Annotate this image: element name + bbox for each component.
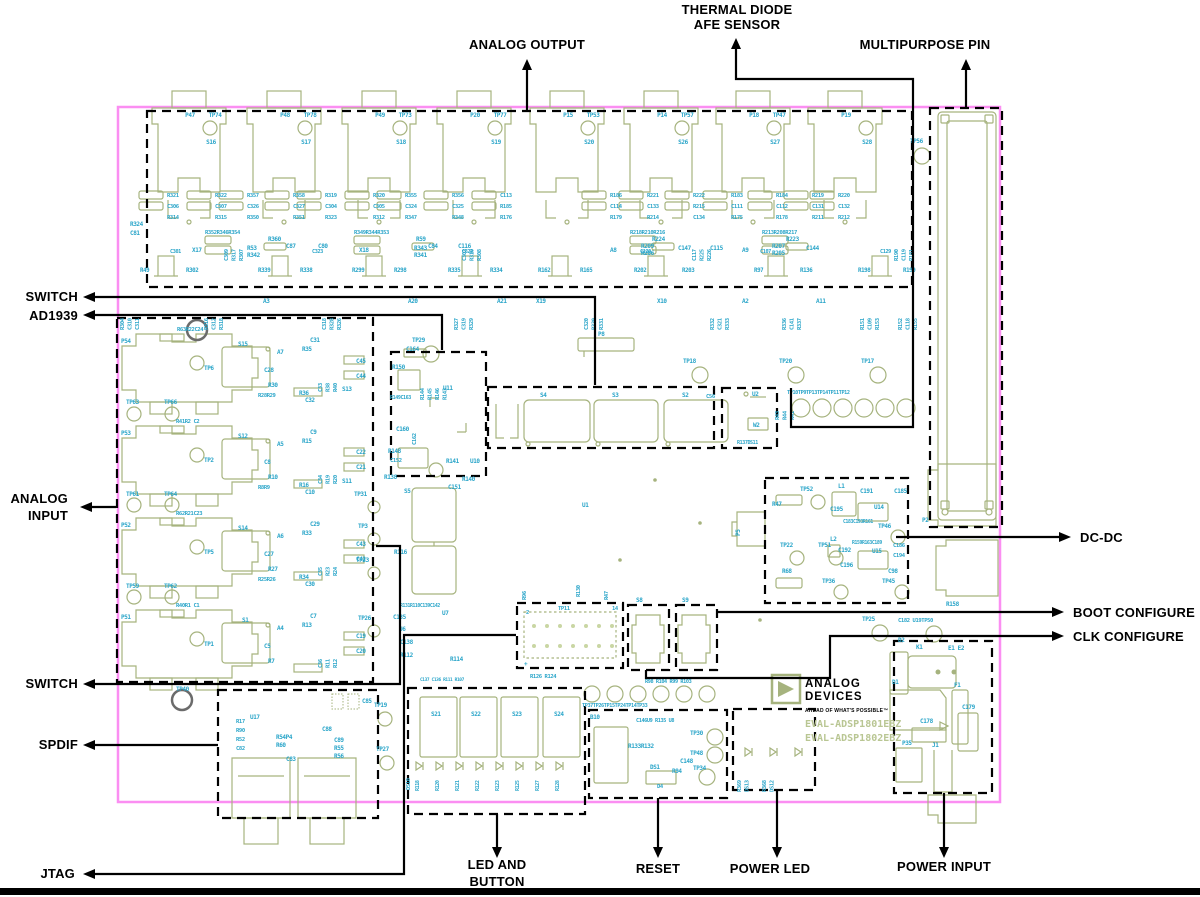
j1-barrel-below-board (928, 795, 976, 823)
silk-label: R315 (215, 215, 227, 221)
silk-label: C147 (678, 245, 692, 252)
silk-label: S26 (678, 139, 688, 146)
silk-label-vertical: R318 (219, 318, 225, 330)
led-label: R125 (515, 780, 521, 791)
silk-label: C133 (647, 204, 659, 210)
jack-tab (362, 91, 396, 108)
testpoint-pad (190, 356, 204, 370)
silk-label: R214 (647, 215, 660, 221)
silk-label: TP36 (822, 578, 836, 585)
silk-label: S4 (540, 392, 547, 399)
silk-label: 14 (612, 606, 619, 612)
silk-label-vertical: C35 (318, 567, 324, 576)
silk-label: S1 (242, 617, 249, 624)
jack-tab (457, 91, 491, 108)
silk-label: R137DS11 (737, 440, 758, 446)
silk-label: C27 (264, 551, 274, 558)
jack-tab (828, 91, 862, 108)
callout-label-led-and-button: BUTTON (469, 874, 524, 889)
switch-relay-outline (222, 439, 270, 479)
silk-label: C304 (325, 204, 338, 210)
silk-label: P2 (922, 517, 929, 524)
reset-tp-pad (699, 686, 715, 702)
silk-label-vertical: C321 (718, 317, 724, 330)
silk-label-vertical: R304 (120, 317, 126, 330)
silk-label: R55 (334, 745, 344, 752)
silk-label: S9 (682, 597, 689, 604)
resistor-outline (205, 236, 231, 244)
silk-label: R149C163 (390, 395, 411, 401)
silk-label: A7 (277, 349, 284, 356)
silk-label-vertical: C310 (128, 318, 134, 330)
silk-label: R343 (414, 245, 428, 252)
silk-label: TP61 (126, 491, 140, 498)
silk-label: C20 (356, 648, 366, 655)
silk-label: TP29 (412, 337, 426, 344)
silk-label-vertical: R316 (204, 317, 210, 330)
jack-foot (196, 402, 218, 414)
silk-label: C138 (400, 639, 414, 646)
silk-label: TP5 (204, 549, 214, 556)
jack-testpoint (393, 121, 407, 135)
callout-arrowhead-switch-bottom (83, 679, 95, 689)
board-name-2: EVAL-ADSP1802EBZ (805, 733, 901, 744)
silk-label: C134 (693, 215, 706, 221)
silk-label: P49 (375, 112, 385, 119)
silk-label: TP52 (800, 486, 814, 493)
callout-line-jtag (93, 635, 516, 874)
silk-label-vertical: R38 (326, 383, 332, 392)
testpoint-pad (127, 407, 141, 421)
silk-label: C22 (356, 449, 366, 456)
silk-label: R17 (236, 719, 245, 725)
silk-label: R222 (693, 193, 705, 199)
silk-label: R49 (140, 268, 150, 274)
silk-label: R202 (634, 268, 647, 274)
pad-dot (936, 670, 941, 675)
callout-label-analog-input: ANALOG (10, 491, 68, 506)
silk-label: C85 (362, 698, 372, 705)
silk-label: U7 (442, 610, 449, 617)
silk-label-vertical: R317 (232, 249, 238, 261)
jack-testpoint (203, 121, 217, 135)
callout-arrowhead-analog-output (522, 59, 532, 70)
silk-label: A9 (742, 247, 749, 254)
silk-label-vertical: R331 (599, 317, 605, 330)
silk-label: R185 (500, 204, 512, 210)
silk-label: C306 (167, 204, 180, 210)
testpoint-pad (834, 585, 848, 599)
silk-label: C185 (894, 488, 908, 495)
silk-label: R60 (276, 742, 286, 749)
led-glyph (496, 762, 503, 770)
silk-label: A2 (742, 298, 749, 305)
silk-label: A4 (277, 625, 284, 632)
silk-label: P14 (657, 112, 667, 119)
testpoint-pad (811, 495, 825, 509)
u7-outline (412, 488, 456, 542)
silk-label: C31 (310, 337, 320, 344)
silk-label-vertical: C318 (322, 318, 328, 330)
silk-label: C29 (310, 521, 320, 528)
silk-label: TP2 (204, 457, 214, 464)
jtag-pad (558, 624, 562, 628)
silk-label: R357 (247, 193, 259, 199)
led-glyph (745, 748, 752, 756)
callout-label-power-input: POWER INPUT (897, 859, 991, 874)
boot-switch-outline (632, 615, 664, 663)
silk-label: C113 (500, 193, 512, 199)
silk-label: R338 (300, 268, 313, 274)
silk-label: R52 (236, 737, 245, 743)
silk-label: TP63 (126, 399, 140, 406)
jack-pin (282, 220, 286, 224)
silk-label: R54P4 (276, 734, 293, 741)
silk-label-vertical: C309 (224, 249, 230, 261)
silk-label: TP6 (204, 365, 214, 372)
silk-label: R13 (302, 622, 312, 629)
silk-label: D1 (892, 679, 899, 686)
silk-label: TP64 (164, 491, 178, 498)
silk-label: J1 (932, 742, 939, 749)
multipurpose-connector-inner (947, 121, 987, 511)
silk-label: S20 (584, 139, 594, 146)
silk-label: C88 (322, 726, 332, 733)
board-outline (118, 107, 1000, 802)
silk-label: TP59 (126, 583, 140, 590)
silk-label-vertical: R145 (428, 388, 434, 400)
callout-label-multipurpose-pin: MULTIPURPOSE PIN (860, 37, 991, 52)
silk-label-vertical: C34 (318, 474, 324, 484)
silk-label: C326 (247, 204, 260, 210)
silk-label: X18 (359, 247, 369, 254)
silk-label: U17 (250, 714, 260, 721)
testpoint-pad (190, 540, 204, 554)
f1-outline (952, 690, 968, 744)
callout-arrowhead-reset (653, 847, 663, 858)
silk-label: R176 (500, 215, 513, 221)
silk-label: R53 (247, 245, 257, 252)
silk-label: TP53 (587, 112, 601, 119)
silk-label: R8R9 (258, 485, 270, 491)
adi-tagline: AHEAD OF WHAT'S POSSIBLE™ (805, 708, 888, 714)
silk-label: R178 (776, 215, 788, 221)
silk-label: TP51 (818, 542, 832, 549)
silk-label: R212 (838, 215, 850, 221)
silk-label: TP10TP9TP13TP14TP11TP12 (787, 390, 850, 396)
via-dot (698, 521, 702, 525)
silk-label: R133R132 (628, 743, 654, 750)
silk-label: S17 (301, 139, 311, 146)
silk-label-vertical: C118 (906, 318, 912, 330)
silk-label: S27 (770, 139, 780, 146)
silk-label: R224 (652, 236, 666, 243)
silk-label: R219 (812, 193, 824, 199)
jtag-pad (584, 624, 588, 628)
silk-label: S13 (342, 386, 352, 393)
silk-label: R62R21C23 (176, 511, 202, 517)
jtag-header-outline (524, 612, 616, 658)
silk-label-vertical: R143 (443, 388, 449, 400)
led-glyph (516, 762, 523, 770)
silk-label: R334 (490, 268, 503, 274)
power-input-region (894, 641, 992, 793)
switch-relay-outline (222, 623, 270, 663)
silk-label: R34 (299, 574, 309, 581)
silk-label: C322 (462, 249, 473, 255)
silk-label: S15 (238, 341, 248, 348)
silk-label-vertical: R308 (477, 249, 483, 261)
output-jack-outline (530, 108, 604, 192)
silk-label: R351 (293, 215, 306, 221)
silk-label: TP26 (358, 615, 372, 622)
connector-pin (986, 509, 992, 515)
silk-label-vertical: C117 (692, 249, 698, 261)
silk-label: R126 R124 (530, 674, 557, 680)
silk-label: TP22 (780, 542, 794, 549)
callout-label-analog-input: INPUT (28, 508, 68, 523)
led-glyph (795, 748, 802, 756)
silk-label: R41R2 C2 (176, 419, 199, 425)
resistor-outline (187, 202, 211, 210)
testpoint-pad (707, 747, 723, 763)
resistor-outline (472, 202, 496, 210)
transistor-outline (158, 256, 174, 276)
silk-label-vertical: R327 (454, 318, 460, 330)
jack-testpoint (581, 121, 595, 135)
silk-label-vertical: R44 (783, 410, 789, 420)
silk-label: P51 (121, 614, 131, 621)
transistor-outline (366, 256, 382, 276)
testpoint-pad (790, 551, 804, 565)
pcb-diagram-canvas: R324C81R352R346R354R360C87C80X17R53R342R… (0, 0, 1200, 897)
silk-label: X17 (192, 247, 202, 254)
p35-outline (896, 748, 922, 782)
j1-outline (934, 750, 952, 792)
silk-label: S21 (431, 711, 441, 718)
jack-tab (550, 91, 584, 108)
silk-label: C7 (310, 613, 317, 620)
silk-label: C137 C136 R111 R107 (420, 677, 465, 683)
silk-label: R312 (373, 215, 385, 221)
silk-label: A3 (263, 298, 270, 305)
silk-label-vertical: R20 (333, 475, 339, 484)
silk-label: P54 (121, 338, 131, 345)
jtag-pad (545, 644, 549, 648)
silk-label: U2 (752, 391, 759, 398)
silk-label-vertical: R151 (860, 317, 866, 330)
silk-label: S2 (682, 392, 689, 399)
silk-label: TP78 (304, 112, 318, 119)
silk-label: D2 (898, 637, 905, 644)
jack-pin (751, 220, 755, 224)
silk-label: U14 (874, 504, 884, 511)
silk-label-vertical: R11 (326, 658, 332, 668)
via-dot (758, 618, 762, 622)
silk-label: C194 (893, 553, 906, 559)
silk-label-vertical: R337 (797, 318, 803, 330)
reset-tp-pad (630, 686, 646, 702)
mount-hole (172, 690, 192, 710)
silk-label: TP25 (862, 616, 876, 623)
silk-label: R179 (610, 215, 622, 221)
jtag-pad (584, 644, 588, 648)
silk-label: R356 (452, 193, 465, 199)
silk-label: R150 (392, 364, 406, 371)
switch-pin (526, 442, 530, 446)
silk-label: C45 (356, 358, 366, 365)
switch-pin (666, 442, 670, 446)
silk-label: R175 (731, 215, 743, 221)
silk-label: TP1 (204, 641, 214, 648)
silk-label: S3 (612, 392, 619, 399)
silk-label: R342 (247, 252, 261, 259)
callout-label-clk-configure: CLK CONFIGURE (1073, 629, 1184, 644)
silk-label-vertical: R326 (337, 317, 343, 330)
silk-label: TP34 (693, 765, 707, 772)
silk-label: C183C193R161 (843, 519, 873, 525)
silk-label: C56 (706, 394, 716, 400)
silk-label: C152 (390, 458, 402, 464)
jack-pin (472, 220, 476, 224)
silk-label: C30 (305, 581, 315, 588)
silk-label: R30 (268, 382, 278, 389)
via-dot (653, 478, 657, 482)
silk-label: A21 (497, 298, 507, 305)
callout-label-reset: RESET (636, 861, 680, 876)
silk-label-vertical: C33 (318, 383, 324, 392)
u11-corner-marks (430, 398, 466, 432)
led-glyph (456, 762, 463, 770)
analog-input-region (117, 318, 373, 682)
silk-label: R203 (682, 268, 695, 274)
silk-label: U10 (470, 458, 480, 465)
silk-label: C192 (838, 547, 852, 554)
jtag-pad (597, 644, 601, 648)
transistor-outline (648, 256, 664, 276)
silk-label: R335 (448, 268, 461, 274)
adi-brand-line2: DEVICES (805, 691, 863, 703)
connector-pin (942, 509, 948, 515)
silk-label: R15 (302, 438, 312, 445)
reset-tp-pad (653, 686, 669, 702)
silk-label: R319 (325, 193, 337, 199)
silk-label: W2 (753, 422, 760, 429)
silk-label: C132 (838, 204, 850, 210)
button-outline (460, 697, 497, 757)
silk-label: TP40 (176, 686, 190, 693)
silk-label: R56 (334, 753, 344, 760)
silk-label: P47 (185, 112, 195, 119)
testpoint-pad (127, 498, 141, 512)
silk-label: R59 (416, 236, 426, 243)
testpoint-pad (870, 367, 886, 383)
silk-label: R112 (400, 652, 414, 659)
silk-label: C9 (310, 429, 317, 436)
jack-foot (196, 494, 218, 506)
silk-label: R140 (462, 476, 476, 483)
k1-outline (890, 652, 908, 694)
silk-label: C10 (305, 489, 315, 496)
led-glyph (556, 762, 563, 770)
silk-label: C8 (264, 459, 271, 466)
silk-label: C148 (680, 758, 694, 765)
led-label: R123 (495, 780, 501, 791)
silk-label-vertical: C320 (584, 318, 590, 330)
led-label: R122 (475, 780, 481, 791)
silk-label: R148 (388, 448, 402, 455)
jack-testpoint (675, 121, 689, 135)
silk-label: R94 (672, 768, 682, 775)
silk-label-vertical: R146 (435, 387, 441, 400)
silk-label: C186 (893, 543, 906, 549)
jtag-pad (610, 644, 614, 648)
silk-label: C182 U19TP50 (898, 618, 933, 624)
callout-arrowhead-thermal-diode (731, 38, 741, 49)
testpoint-pad (378, 712, 392, 726)
led-label: R128 (555, 780, 561, 791)
silk-label: P8 (598, 331, 605, 338)
silk-label: R138 (384, 474, 398, 481)
testpoint-pad (190, 632, 204, 646)
thermal-tp-pad (876, 399, 894, 417)
led-label: R127 (535, 780, 541, 791)
callout-arrowhead-ad1939 (83, 310, 95, 320)
silk-label: TP19 (374, 702, 388, 709)
jtag-pad (558, 644, 562, 648)
resistor-outline (582, 202, 606, 210)
silk-label: R349R344R353 (354, 230, 389, 236)
silk-label: C21 (356, 464, 366, 471)
thermal-tp-pad (813, 399, 831, 417)
silk-label: R90 (236, 728, 245, 734)
silk-label-vertical: R40 (333, 383, 339, 392)
silk-label: R28R29 (258, 393, 276, 399)
silk-label: C81 (130, 230, 140, 237)
silk-label: C129 (880, 249, 891, 255)
silk-label: D4 (657, 784, 664, 790)
button-outline (543, 697, 580, 757)
silk-label: R68 (782, 568, 792, 575)
silk-label: R355 (405, 193, 417, 199)
silk-label: TP66 (164, 399, 178, 406)
jtag-pad (532, 644, 536, 648)
output-jack-outline (808, 108, 882, 192)
silk-label: R199 (903, 268, 916, 274)
testpoint-pad (914, 148, 930, 164)
silk-label: C195 (830, 506, 844, 513)
silk-label: C44 (356, 373, 366, 380)
transistor-outline (552, 256, 568, 276)
r150-outline (398, 370, 420, 390)
silk-label: K1 (916, 644, 923, 651)
button-outline (501, 697, 538, 757)
silk-label: C327 (293, 204, 305, 210)
silk-label: R136 (800, 268, 813, 274)
silk-label-vertical: R153 (875, 318, 881, 330)
jtag-pad (610, 624, 614, 628)
silk-label: R322 (215, 193, 227, 199)
jtag-pad (545, 624, 549, 628)
switch-array-region (488, 387, 714, 448)
callout-arrowhead-analog-input (80, 502, 92, 512)
silk-label: C191 (860, 488, 874, 495)
led-glyph (770, 748, 777, 756)
silk-label-vertical: R23 (326, 567, 332, 576)
output-jack-outline (152, 108, 226, 192)
callout-arrowhead-boot-configure (1052, 607, 1064, 617)
silk-label: R131R110C139C142 (400, 603, 440, 609)
